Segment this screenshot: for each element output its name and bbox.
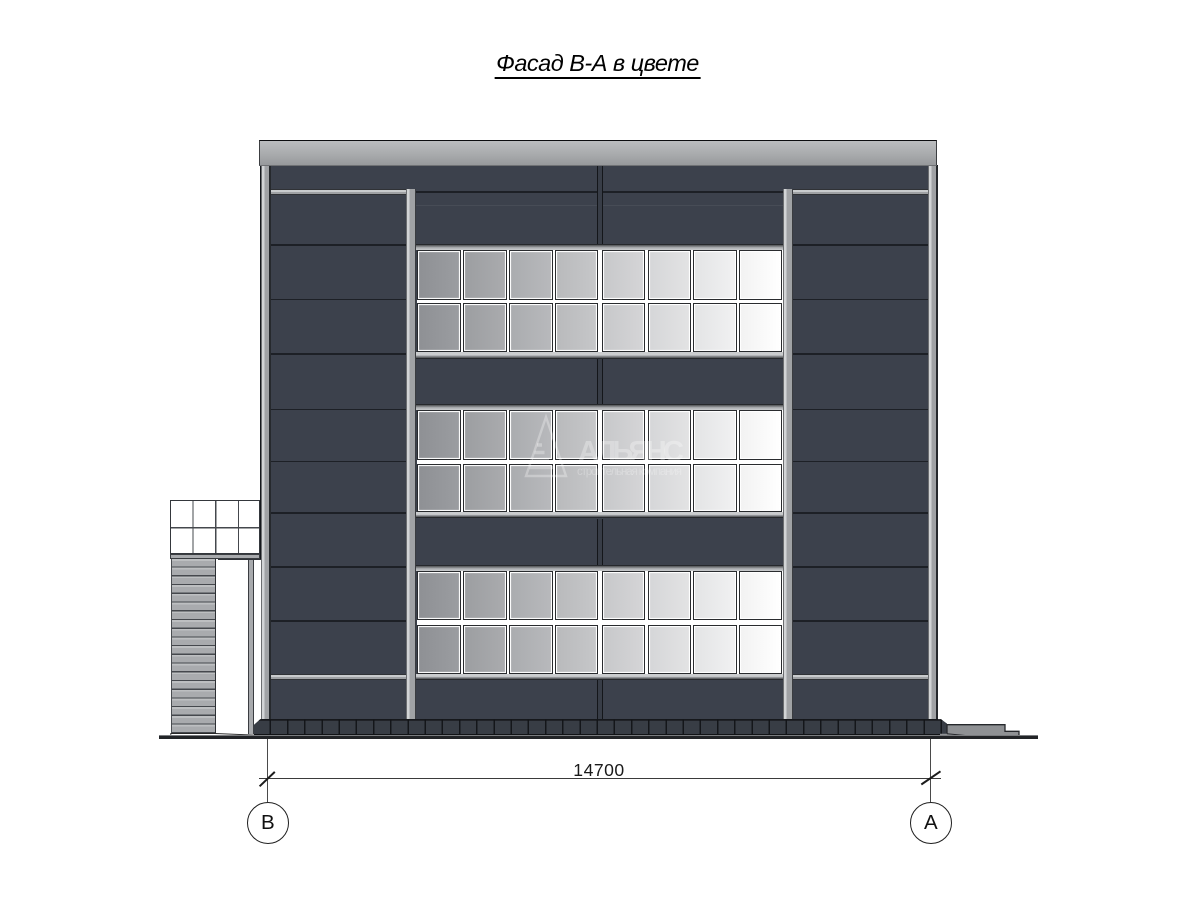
svg-text:АЛЬЯНС: АЛЬЯНС	[578, 436, 684, 468]
svg-text:строительная компания: строительная компания	[577, 466, 682, 478]
